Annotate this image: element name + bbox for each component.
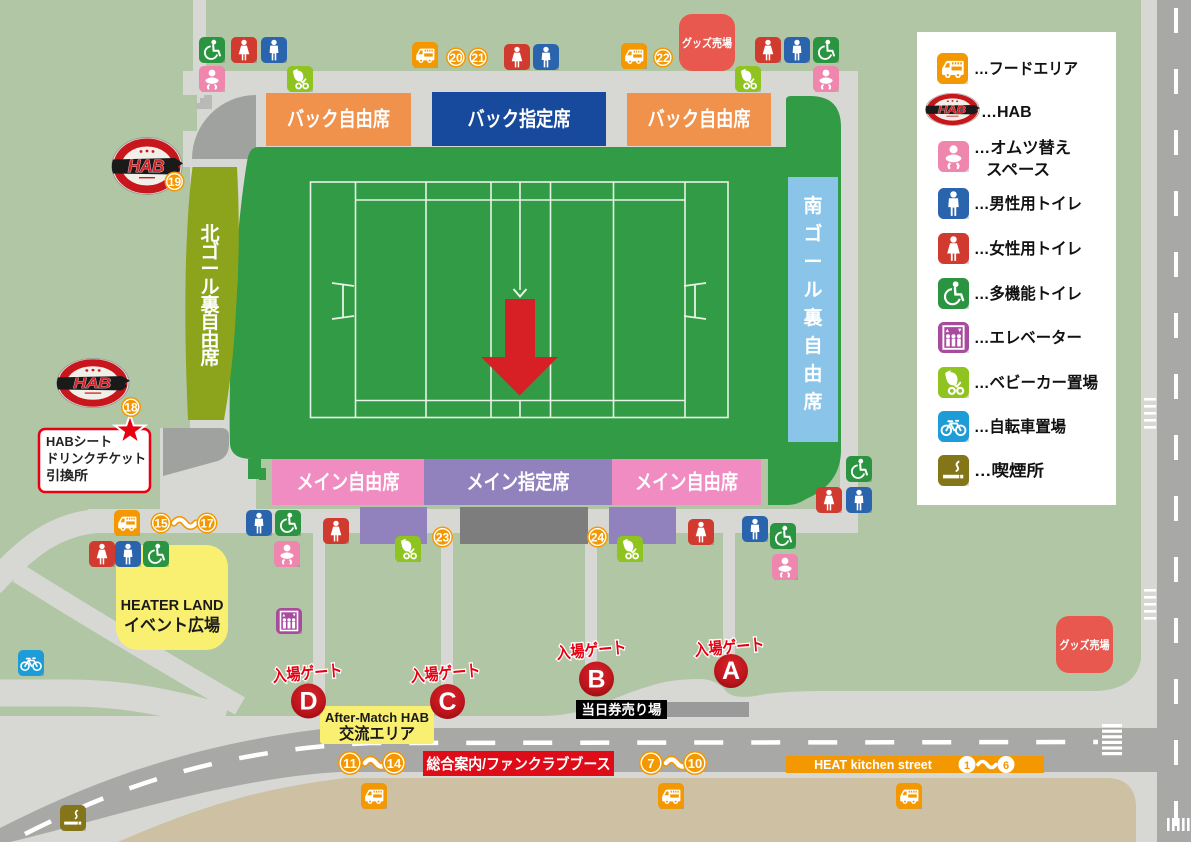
svg-text:24: 24 — [591, 531, 605, 545]
svg-text:ドリンクチケット: ドリンクチケット — [46, 451, 146, 466]
svg-text:…オムツ替え: …オムツ替え — [974, 138, 1071, 157]
svg-text:A: A — [722, 657, 740, 685]
svg-text:17: 17 — [200, 517, 214, 531]
svg-text:7: 7 — [647, 756, 654, 771]
svg-text:HEATER LAND: HEATER LAND — [121, 598, 224, 614]
svg-text:スペース: スペース — [986, 162, 1050, 179]
svg-text:…エレベーター: …エレベーター — [974, 329, 1082, 347]
svg-text:メイン指定席: メイン指定席 — [467, 470, 570, 494]
svg-text:イベント広場: イベント広場 — [124, 615, 220, 635]
svg-text:20: 20 — [449, 51, 463, 65]
svg-text:…HAB: …HAB — [981, 104, 1032, 121]
svg-text:…ベビーカー置場: …ベビーカー置場 — [974, 374, 1098, 392]
svg-text:メイン自由席: メイン自由席 — [297, 470, 400, 494]
svg-text:交流エリア: 交流エリア — [339, 724, 415, 743]
svg-text:HABシート: HABシート — [46, 434, 112, 449]
svg-text:15: 15 — [154, 517, 168, 531]
svg-text:グッズ売場: グッズ売場 — [1060, 638, 1110, 652]
svg-text:B: B — [587, 666, 605, 694]
svg-text:…女性用トイレ: …女性用トイレ — [974, 239, 1082, 258]
svg-text:D: D — [299, 688, 317, 716]
svg-text:21: 21 — [471, 51, 485, 65]
svg-text:6: 6 — [1003, 760, 1009, 772]
svg-text:22: 22 — [656, 51, 670, 65]
svg-text:…男性用トイレ: …男性用トイレ — [974, 194, 1082, 213]
svg-text:当日券売り場: 当日券売り場 — [582, 702, 662, 718]
svg-text:…自転車置場: …自転車置場 — [974, 417, 1066, 436]
svg-text:1: 1 — [964, 760, 970, 772]
svg-text:23: 23 — [436, 531, 450, 545]
svg-text:HEAT kitchen street: HEAT kitchen street — [814, 758, 933, 772]
svg-text:10: 10 — [688, 756, 702, 771]
svg-text:14: 14 — [387, 756, 402, 771]
svg-text:バック指定席: バック指定席 — [468, 107, 571, 131]
svg-text:11: 11 — [343, 756, 357, 771]
svg-text:北ゴール裏自由席: 北ゴール裏自由席 — [199, 223, 220, 369]
svg-text:C: C — [438, 688, 456, 716]
svg-text:19: 19 — [168, 175, 182, 189]
svg-text:After-Match HAB: After-Match HAB — [325, 710, 429, 725]
svg-text:バック自由席: バック自由席 — [648, 107, 751, 131]
svg-text:18: 18 — [124, 401, 138, 415]
svg-text:メイン自由席: メイン自由席 — [635, 470, 738, 494]
svg-text:グッズ売場: グッズ売場 — [682, 36, 732, 50]
svg-text:引換所: 引換所 — [46, 468, 88, 483]
svg-text:…喫煙所: …喫煙所 — [974, 462, 1044, 480]
svg-text:…フードエリア: …フードエリア — [974, 61, 1078, 78]
svg-text:バック自由席: バック自由席 — [287, 107, 390, 131]
svg-text:総合案内/ファンクラブブース: 総合案内/ファンクラブブース — [427, 755, 611, 773]
svg-text:…多機能トイレ: …多機能トイレ — [974, 284, 1082, 303]
